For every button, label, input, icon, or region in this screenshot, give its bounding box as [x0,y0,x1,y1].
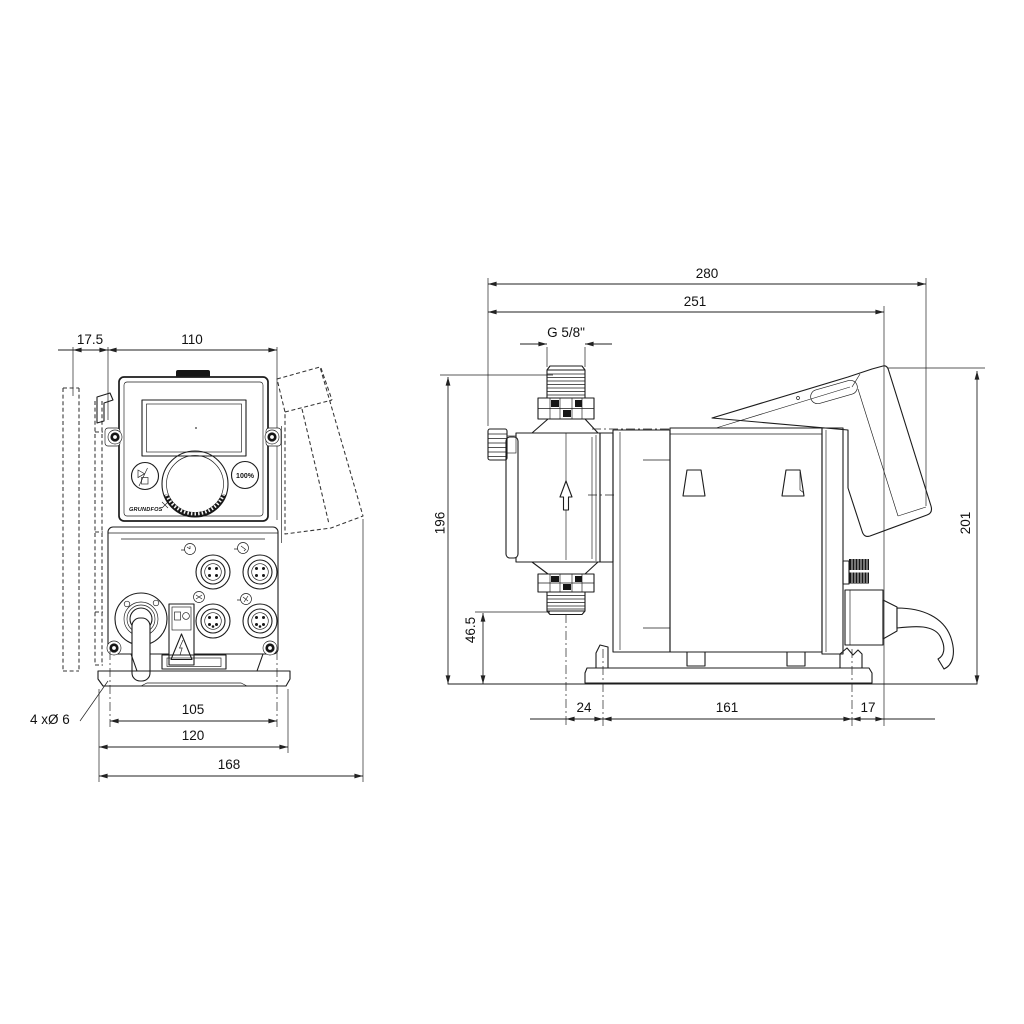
front-view: 100% GRUNDFOS [30,332,363,782]
hundred-percent-label: 100% [236,473,255,480]
dim-connection-thread: G 5/8" [547,325,585,340]
power-cable [897,608,953,669]
dim-front-plate-width: 120 [182,728,205,743]
dim-front-overall-width: 168 [218,757,241,772]
brand-wordmark: GRUNDFOS [129,507,163,513]
connector-socket[interactable] [196,604,230,638]
flow-arrow-icon [560,481,572,510]
clip-tab [782,470,804,496]
pump-dimensional-drawing: 100% GRUNDFOS [0,0,1024,1024]
dim-side-front-offset: 24 [576,700,592,715]
thread-hatch [547,374,585,395]
dim-side-hole-spacing: 161 [716,700,739,715]
side-view: 280 251 G 5/8" 196 46.5 [433,266,986,726]
warning-label-plate [169,604,194,665]
connector-socket[interactable] [243,555,277,589]
dosing-head [488,429,614,562]
pinout-icon [234,543,249,554]
side-base [585,645,872,683]
dim-side-length: 251 [684,294,707,309]
connector-socket[interactable] [196,555,230,589]
dimensional-drawing-page: 100% GRUNDFOS [0,0,1024,1024]
screw-icon [265,430,279,444]
connector-field [181,543,277,639]
dim-front-offset: 17.5 [77,332,103,347]
motor-housing [670,428,843,666]
dim-side-overall-length: 280 [696,266,719,281]
screw-icon [263,641,277,655]
screw-icon [108,430,122,444]
strain-relief [883,600,897,639]
dim-front-width: 110 [181,332,203,347]
suction-fitting [532,366,598,433]
display-dot [195,427,197,429]
dim-side-rear-height: 201 [958,512,973,535]
dim-side-clearance: 46.5 [463,617,478,643]
dim-side-height: 196 [433,512,448,535]
control-panel: 100% GRUNDFOS [105,370,282,543]
mains-cable-gland [115,593,167,681]
dim-side-rear-offset: 17 [860,700,875,715]
discharge-fitting [532,562,598,615]
screw-icon [107,641,121,655]
pinout-icon [181,544,196,555]
pinout-icon [194,592,205,603]
rear-cable-assembly [840,559,953,669]
clip-tab [683,470,705,496]
clamp-flange [592,429,670,652]
front-hood-hidden [277,367,363,534]
mounting-holes-note: 4 xØ 6 [30,712,70,727]
dim-front-hole-spacing: 105 [182,702,205,717]
connector-socket[interactable] [243,604,277,638]
mounting-clip [97,393,113,423]
pinout-icon [237,594,252,605]
